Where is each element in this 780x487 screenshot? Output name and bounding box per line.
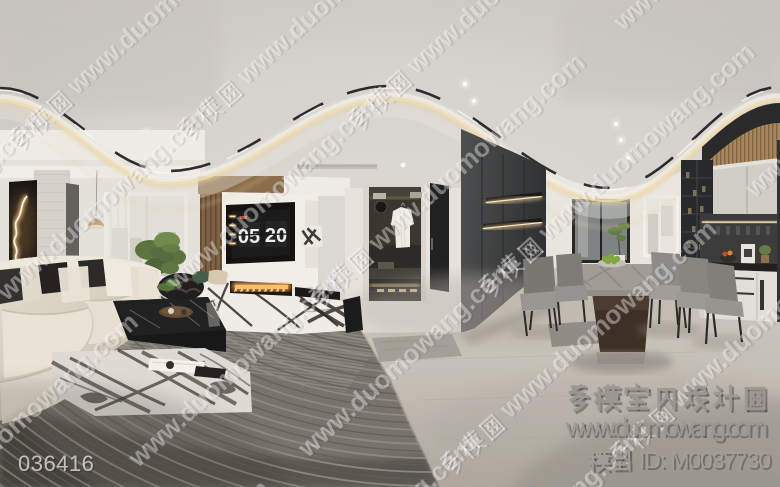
svg-text:ID: M0037730: ID: M0037730 [639, 447, 771, 473]
svg-text:www.duomowang.com: www.duomowang.com [565, 412, 768, 442]
svg-text:036416: 036416 [18, 451, 94, 476]
